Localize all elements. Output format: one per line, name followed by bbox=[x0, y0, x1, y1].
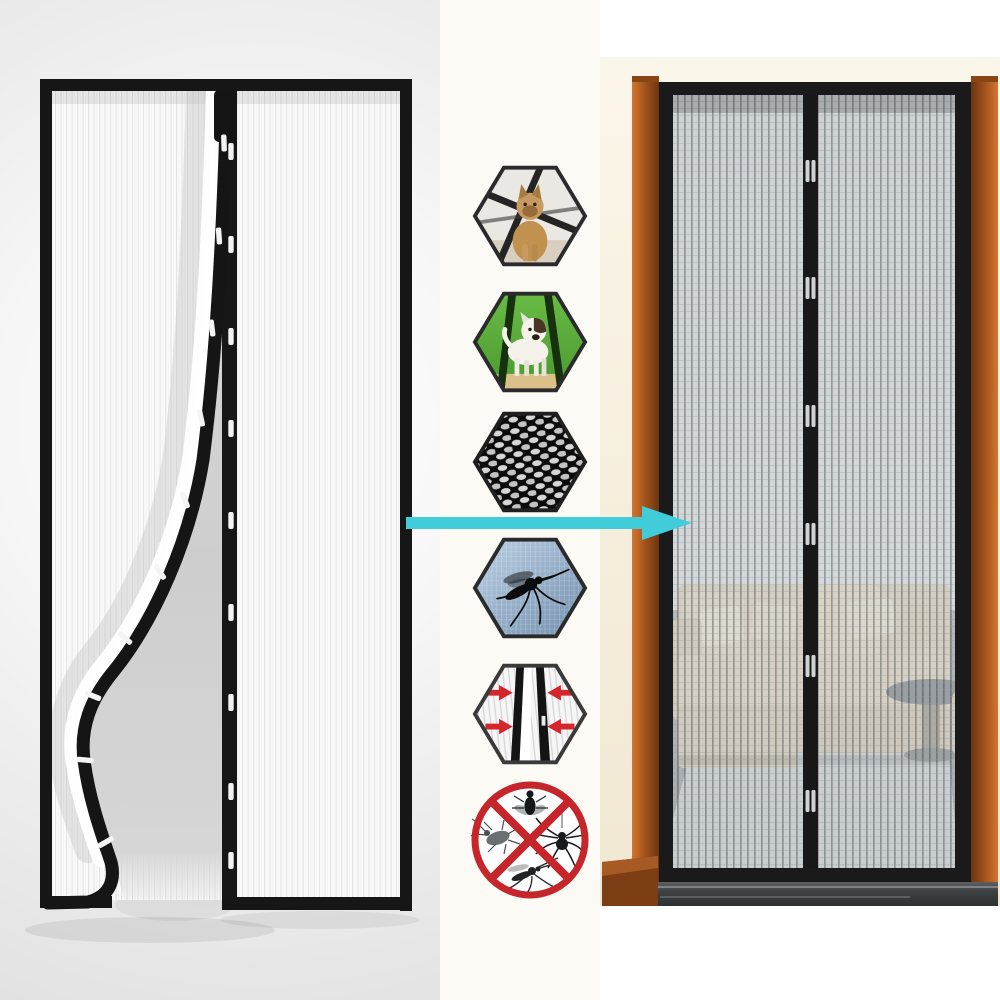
arrow-shaft bbox=[406, 517, 646, 529]
magnetic-close-icon bbox=[472, 662, 588, 766]
feature-icon-no-insects bbox=[468, 778, 592, 902]
frame-left bbox=[40, 79, 52, 908]
no-insects-icon bbox=[468, 778, 592, 902]
feature-icon-dog bbox=[472, 290, 588, 394]
threshold bbox=[602, 882, 998, 906]
frame-top bbox=[40, 79, 412, 91]
installed-door-photo bbox=[600, 0, 1000, 1000]
feature-icons-column bbox=[440, 0, 600, 1000]
frame-right bbox=[400, 79, 412, 911]
feature-icon-cat bbox=[472, 164, 588, 268]
transition-arrow-icon bbox=[406, 501, 696, 545]
wood-post-right-cap bbox=[971, 76, 998, 82]
wood-post-left bbox=[632, 76, 659, 903]
arrow-head bbox=[642, 506, 692, 540]
dog-icon bbox=[472, 290, 588, 394]
mosquito-icon bbox=[472, 536, 588, 640]
wood-floor-corner bbox=[602, 856, 658, 906]
screen-frame-left bbox=[659, 82, 673, 888]
left-product-shot bbox=[0, 0, 440, 1000]
wood-post-left-cap bbox=[632, 76, 659, 82]
frame-bottom-left bbox=[40, 896, 112, 908]
living-room-scene bbox=[660, 95, 978, 868]
magnetic-screen-door-render bbox=[0, 0, 440, 1000]
installed-door-scene bbox=[600, 0, 1000, 1000]
feature-icon-mesh bbox=[472, 410, 588, 514]
center-magnetic-strip bbox=[803, 95, 818, 868]
screen-frame-top bbox=[659, 82, 972, 95]
feature-icon-magnetic-close bbox=[472, 662, 588, 766]
screen-frame-right bbox=[955, 82, 972, 888]
frame-bottom-right bbox=[222, 897, 412, 910]
feature-icon-mosquito bbox=[472, 536, 588, 640]
cat-icon bbox=[472, 164, 588, 268]
product-image bbox=[0, 0, 1000, 1000]
mesh-closeup-icon bbox=[472, 410, 588, 514]
wood-post-right bbox=[971, 76, 998, 903]
